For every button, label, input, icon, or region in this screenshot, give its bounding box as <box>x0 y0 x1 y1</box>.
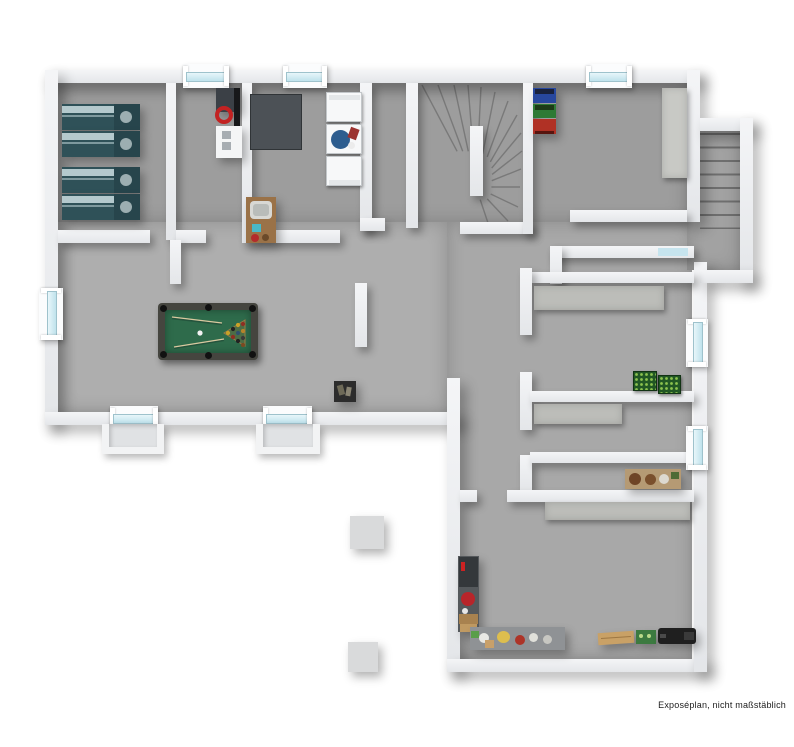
storage-shelf-unit-4-detail <box>62 196 114 203</box>
food-counter-detail <box>485 640 494 648</box>
window-top-1-glass <box>186 72 226 82</box>
wall-annex-right <box>740 118 753 283</box>
storage-shelf-unit-1-detail <box>120 111 132 123</box>
compartment-shelf-b <box>534 404 622 424</box>
crate-stack-detail <box>535 105 554 110</box>
storage-shelf-unit-4-detail <box>120 201 132 213</box>
window-bottom-1-glass <box>113 414 155 424</box>
jar-shelf-detail <box>659 474 669 484</box>
billiard-cues-and-balls <box>158 303 258 360</box>
window-left-1-glass <box>47 291 57 337</box>
tool-wall-detail <box>461 592 475 606</box>
wall-bottomroom-top-b <box>507 490 694 502</box>
window-top-3-glass <box>589 72 629 82</box>
bottle-crate-2 <box>658 375 681 394</box>
light-well-block-2 <box>348 642 378 672</box>
wall-billiard-stub-top <box>170 240 181 284</box>
bottle-crate-1 <box>633 371 657 391</box>
food-counter <box>470 627 565 650</box>
plan-caption: Exposéplan, nicht maßstäblich <box>658 700 786 710</box>
wood-plank <box>598 631 635 645</box>
jar-shelf-detail <box>645 474 656 485</box>
wall-stairwell-right <box>523 83 533 234</box>
workbench-laundry-detail <box>251 234 259 242</box>
workbench-laundry-detail <box>253 204 269 216</box>
window-left-1 <box>39 288 63 340</box>
storage-shelf-unit-1-detail <box>62 115 114 117</box>
window-right-1 <box>686 319 708 367</box>
food-counter-detail <box>515 635 525 645</box>
washing-machine <box>326 92 362 122</box>
power-drill-detail <box>660 634 666 638</box>
window-well-2 <box>256 424 320 454</box>
billiard-corner-item-detail <box>345 387 351 397</box>
wall-storage-bottom <box>58 230 150 243</box>
floor-top-band <box>58 83 687 222</box>
window-well-1 <box>102 424 164 454</box>
wall-corridor-h <box>550 246 694 258</box>
workbench-laundry-detail <box>252 224 261 232</box>
storage-shelf-unit-3-detail <box>120 174 132 186</box>
bottomroom-shelf <box>545 502 690 520</box>
billiard-table <box>158 303 258 360</box>
food-counter-detail <box>529 633 538 642</box>
basement-floor-plan: IllustrationDomoGrafik Exposéplan, nicht… <box>0 0 794 747</box>
wall-bottomroom-top-a <box>460 490 477 502</box>
food-counter-detail <box>497 631 510 643</box>
wall-annex-bottom <box>700 270 753 283</box>
tool-wall <box>458 556 479 632</box>
light-well-block-1 <box>350 516 384 549</box>
window-bottom-2-glass <box>266 414 309 424</box>
storage-shelf-unit-2 <box>62 131 140 157</box>
wood-plank-detail <box>601 636 631 639</box>
storage-shelf-unit-2-detail <box>62 142 114 144</box>
tool-wall-detail <box>459 614 478 624</box>
window-top-3 <box>586 64 632 88</box>
wall-exterior-bottom <box>447 659 707 672</box>
storage-shelf-unit-3-detail <box>62 169 114 176</box>
workbench-laundry <box>246 197 276 243</box>
jar-shelf-detail <box>629 473 641 485</box>
boiler-pipe <box>234 88 240 128</box>
corridor-window-glass <box>658 248 688 256</box>
jar-shelf-detail <box>671 472 679 479</box>
wall-billiard-stub-right <box>355 283 367 347</box>
storage-shelf-unit-3 <box>62 167 140 193</box>
food-counter-detail <box>543 635 552 644</box>
dryer <box>326 156 362 186</box>
wall-compartment3-top <box>530 452 694 463</box>
washing-machine-detail <box>329 95 360 100</box>
storage-shelf-unit-2-detail <box>120 138 132 150</box>
crate-stack-detail <box>535 89 554 94</box>
green-toolbox-detail <box>647 634 651 638</box>
wall-exterior-left <box>45 70 58 425</box>
window-top-2-glass <box>286 72 324 82</box>
storage-shelf-unit-3-detail <box>62 178 114 180</box>
billiard-corner-item <box>334 381 356 402</box>
drying-rack <box>250 94 302 150</box>
window-right-2 <box>686 426 708 470</box>
crate-stack-detail <box>535 131 554 134</box>
laundry-basket-detail <box>348 142 355 149</box>
wall-stairwell-left <box>406 83 418 228</box>
boiler-valve <box>215 106 233 124</box>
food-counter-detail <box>471 631 479 638</box>
storage-shelf-unit-2-detail <box>62 133 114 140</box>
dryer-detail <box>329 180 360 185</box>
power-drill <box>658 628 696 644</box>
storage-shelf-unit-1 <box>62 104 140 130</box>
storage-shelf-unit-1-detail <box>62 106 114 113</box>
window-right-1-glass <box>693 322 703 364</box>
boiler-cabinet <box>216 126 242 158</box>
straight-stairs-treads <box>700 133 740 229</box>
green-toolbox-detail <box>639 634 643 638</box>
wall-exterior-right-upper <box>687 70 700 222</box>
storage-shelf-unit-4 <box>62 194 140 220</box>
boiler-cabinet-detail <box>222 142 231 150</box>
storage-shelf-unit-4-detail <box>62 205 114 207</box>
crate-stack <box>533 88 556 134</box>
wall-laundry-foot <box>360 218 385 231</box>
green-toolbox <box>636 630 656 644</box>
window-top-2 <box>283 64 327 88</box>
tool-wall-detail <box>461 562 465 571</box>
wall-storage-divider <box>166 83 176 240</box>
topright-wall-shelf <box>662 88 687 178</box>
workbench-laundry-detail <box>262 234 269 241</box>
window-top-1 <box>183 64 229 88</box>
wall-corridor-left-a <box>520 268 532 335</box>
jar-shelf <box>625 469 681 489</box>
wall-compartment1-top <box>530 272 694 283</box>
wall-stair-stub <box>470 126 483 196</box>
boiler-cabinet-detail <box>222 131 231 139</box>
compartment-shelf-a <box>534 286 664 310</box>
power-drill-detail <box>684 632 694 640</box>
billiard-corner-item-detail <box>337 384 345 395</box>
wall-topright-bottom <box>570 210 687 222</box>
laundry-basket <box>326 124 362 154</box>
window-right-2-glass <box>693 429 703 467</box>
